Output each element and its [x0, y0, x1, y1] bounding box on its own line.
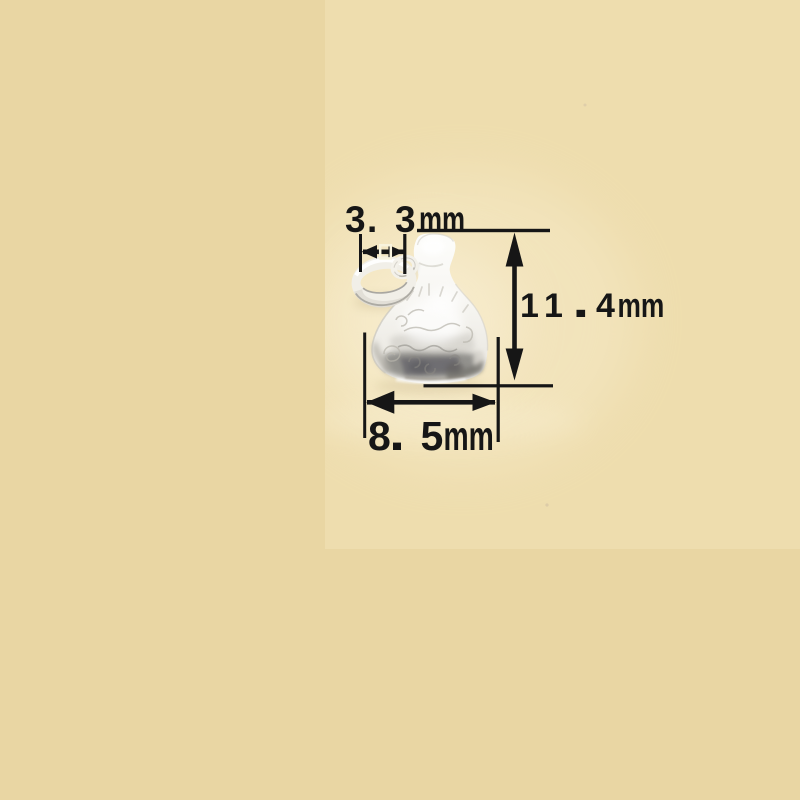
svg-text:4: 4	[596, 287, 615, 325]
svg-text:1: 1	[520, 287, 539, 325]
svg-text:.: .	[367, 199, 377, 240]
svg-text:.: .	[576, 287, 585, 325]
svg-text:mm: mm	[444, 414, 494, 459]
svg-text:mm: mm	[618, 287, 665, 325]
svg-text:5: 5	[421, 413, 444, 459]
svg-text:3: 3	[395, 199, 416, 240]
svg-text:8: 8	[368, 413, 391, 459]
svg-text:3: 3	[345, 199, 366, 240]
svg-text:.: .	[392, 413, 403, 459]
svg-text:1: 1	[544, 287, 563, 325]
svg-text:mm: mm	[419, 198, 465, 240]
